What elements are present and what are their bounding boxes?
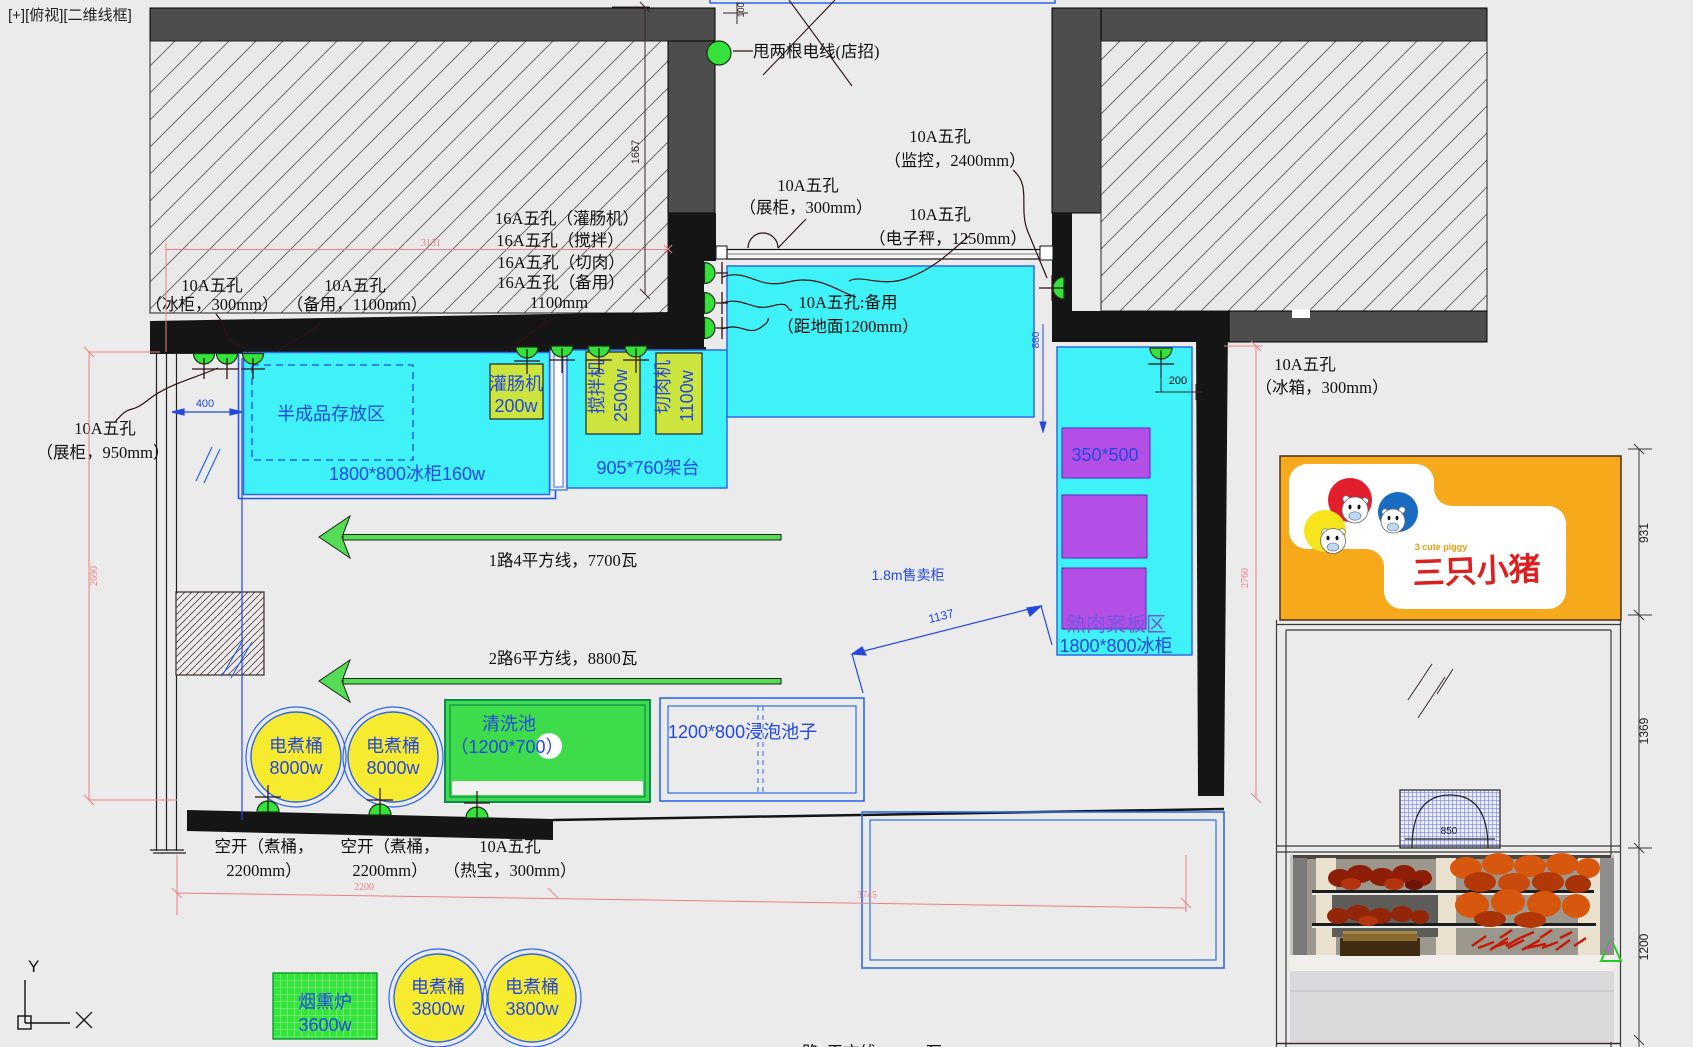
svg-text:1100w: 1100w (677, 369, 697, 422)
svg-text:甩两根电线(店招): 甩两根电线(店招) (753, 42, 880, 61)
svg-text:10A五孔: 10A五孔 (777, 176, 838, 195)
svg-text:半成品存放区: 半成品存放区 (277, 404, 385, 424)
svg-text:10A五孔: 10A五孔 (479, 837, 540, 856)
svg-text:1800*800冰柜160w: 1800*800冰柜160w (329, 464, 486, 484)
svg-text:905*760架台: 905*760架台 (596, 458, 699, 478)
svg-text:空开（煮桶，: 空开（煮桶， (215, 837, 314, 856)
svg-text:200w: 200w (494, 396, 538, 416)
svg-text:16A五孔（搅拌）: 16A五孔（搅拌） (496, 231, 623, 250)
svg-text:烟熏炉: 烟熏炉 (298, 992, 352, 1012)
svg-text:3800w: 3800w (411, 999, 465, 1019)
svg-text:（距地面1200mm）: （距地面1200mm） (777, 317, 918, 336)
svg-text:16A五孔（灌肠机）: 16A五孔（灌肠机） (495, 209, 639, 228)
svg-text:（展柜，300mm）: （展柜，300mm） (740, 198, 873, 217)
svg-text:电煮桶: 电煮桶 (269, 736, 323, 756)
svg-text:400: 400 (196, 398, 214, 410)
svg-text:（展柜，950mm）: （展柜，950mm） (37, 443, 170, 462)
svg-text:10A五孔:备用: 10A五孔:备用 (799, 293, 898, 312)
svg-text:2200mm）: 2200mm） (352, 861, 427, 880)
svg-text:10A五孔: 10A五孔 (74, 419, 135, 438)
svg-text:2200mm）: 2200mm） (226, 861, 301, 880)
svg-text:空开（煮桶，: 空开（煮桶， (341, 837, 440, 856)
svg-text:1800*800冰柜: 1800*800冰柜 (1059, 636, 1172, 656)
svg-text:电煮桶: 电煮桶 (366, 736, 420, 756)
svg-text:切肉机: 切肉机 (653, 360, 673, 414)
svg-text:8000w: 8000w (366, 758, 420, 778)
svg-text:（监控，2400mm）: （监控，2400mm） (884, 151, 1025, 170)
svg-text:3151: 3151 (421, 238, 441, 249)
svg-text:1667: 1667 (630, 140, 642, 164)
svg-text:2690: 2690 (89, 566, 100, 586)
svg-text:1200: 1200 (1637, 933, 1651, 960)
svg-text:200: 200 (1169, 375, 1187, 387)
svg-text:（热宝，300mm）: （热宝，300mm） (444, 861, 577, 880)
svg-text:350*500: 350*500 (1071, 445, 1138, 465)
svg-text:2760: 2760 (1240, 568, 1251, 588)
svg-text:16A五孔（切肉）: 16A五孔（切肉） (497, 253, 624, 272)
svg-text:1369: 1369 (1637, 717, 1651, 744)
svg-text:电煮桶: 电煮桶 (505, 977, 559, 997)
svg-text:（冰柜，300mm）: （冰柜，300mm） (146, 295, 279, 314)
svg-text:（备用，1100mm）: （备用，1100mm） (287, 295, 428, 314)
svg-text:3745: 3745 (857, 890, 877, 901)
svg-text:（电子秤，1250mm）: （电子秤，1250mm） (869, 229, 1027, 248)
svg-text:3 cute piggy: 3 cute piggy (1415, 542, 1468, 552)
svg-text:1路4平方线，7700瓦: 1路4平方线，7700瓦 (489, 551, 638, 570)
svg-text:8000w: 8000w (269, 758, 323, 778)
svg-text:2500w: 2500w (611, 368, 631, 422)
svg-text:3800w: 3800w (505, 999, 559, 1019)
svg-text:三只小猪: 三只小猪 (1412, 551, 1541, 591)
svg-text:10A五孔: 10A五孔 (1274, 355, 1335, 374)
svg-text:1100mm: 1100mm (530, 293, 588, 312)
svg-text:电煮桶: 电煮桶 (411, 977, 465, 997)
svg-text:熟肉案板区: 熟肉案板区 (1066, 613, 1166, 636)
svg-text:[+][俯视][二维线框]: [+][俯视][二维线框] (8, 7, 132, 24)
svg-text:灌肠机: 灌肠机 (489, 374, 543, 394)
svg-text:1200*800浸泡池子: 1200*800浸泡池子 (668, 722, 817, 742)
svg-text:16A五孔（备用）: 16A五孔（备用） (497, 273, 624, 292)
svg-text:（冰箱，300mm）: （冰箱，300mm） (1256, 378, 1389, 397)
svg-text:2路6平方线，8800瓦: 2路6平方线，8800瓦 (489, 649, 638, 668)
svg-text:10A五孔: 10A五孔 (181, 276, 242, 295)
svg-text:清洗池: 清洗池 (482, 714, 536, 734)
svg-text:850: 850 (1441, 826, 1458, 837)
svg-text:1路6平方线，8800瓦: 1路6平方线，8800瓦 (794, 1043, 943, 1047)
svg-text:880: 880 (1031, 331, 1042, 348)
svg-text:100: 100 (736, 2, 746, 17)
svg-text:Y: Y (28, 957, 39, 976)
svg-text:（1200*700）: （1200*700） (450, 737, 563, 757)
svg-text:931: 931 (1637, 523, 1651, 543)
svg-text:3600w: 3600w (298, 1015, 352, 1035)
svg-text:搅拌机: 搅拌机 (587, 360, 607, 414)
svg-text:2200: 2200 (354, 882, 374, 893)
svg-text:10A五孔: 10A五孔 (324, 276, 385, 295)
svg-text:1.8m售卖柜: 1.8m售卖柜 (871, 567, 944, 583)
svg-text:10A五孔: 10A五孔 (909, 127, 970, 146)
svg-text:10A五孔: 10A五孔 (909, 205, 970, 224)
